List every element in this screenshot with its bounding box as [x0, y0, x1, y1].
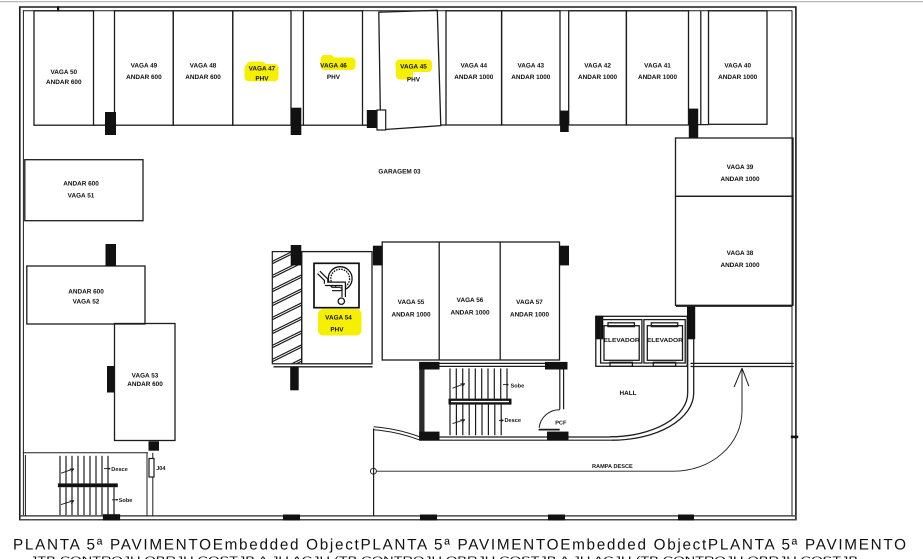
svg-text:PLANTA 5ª PAVIMENTOEmbedded: PLANTA 5ª PAVIMENTOEmbedded ObjectPLANTA…	[13, 537, 906, 554]
svg-text:ANDAR 1000: ANDAR 1000	[511, 74, 551, 81]
svg-text:VAGA 38: VAGA 38	[727, 250, 754, 257]
svg-text:ANDAR 1000: ANDAR 1000	[391, 311, 431, 318]
svg-text:ANDAR 1000: ANDAR 1000	[638, 74, 678, 81]
svg-text:PHV: PHV	[330, 326, 344, 333]
svg-text:HALL: HALL	[619, 390, 636, 397]
svg-text:VAGA 50: VAGA 50	[50, 69, 77, 76]
svg-text:PHV: PHV	[407, 77, 421, 84]
svg-text:PHV: PHV	[327, 74, 341, 81]
svg-text:JTB CONTROJU OBRJU COSTJB A JU: JTB CONTROJU OBRJU COSTJB A JU ACJU (TB …	[30, 554, 858, 559]
svg-text:VAGA 54: VAGA 54	[325, 314, 352, 321]
svg-text:ANDAR 1000: ANDAR 1000	[718, 74, 758, 81]
svg-text:ANDAR 1000: ANDAR 1000	[720, 262, 760, 269]
svg-text:ANDAR 600: ANDAR 600	[46, 79, 82, 86]
svg-text:ANDAR 1000: ANDAR 1000	[450, 309, 490, 316]
svg-text:VAGA 49: VAGA 49	[131, 63, 158, 70]
svg-text:VAGA 40: VAGA 40	[724, 63, 751, 70]
svg-text:VAGA 47: VAGA 47	[249, 65, 276, 72]
svg-text:VAGA 55: VAGA 55	[398, 299, 425, 306]
svg-text:VAGA 39: VAGA 39	[727, 164, 754, 171]
svg-text:VAGA 45: VAGA 45	[400, 64, 427, 71]
svg-text:Desce: Desce	[111, 467, 127, 473]
svg-text:GARAGEM 03: GARAGEM 03	[378, 169, 421, 176]
svg-text:VAGA 53: VAGA 53	[132, 373, 159, 380]
svg-text:ANDAR 1000: ANDAR 1000	[578, 74, 618, 81]
svg-text:VAGA 44: VAGA 44	[460, 63, 487, 70]
svg-text:VAGA 42: VAGA 42	[584, 63, 611, 70]
svg-text:RAMPA DESCE: RAMPA DESCE	[592, 464, 633, 470]
svg-text:PCF: PCF	[555, 421, 567, 427]
svg-text:Desce: Desce	[505, 418, 521, 424]
svg-text:ANDAR 600: ANDAR 600	[185, 74, 221, 81]
svg-text:VAGA 52: VAGA 52	[73, 298, 100, 305]
svg-text:VAGA 48: VAGA 48	[190, 63, 217, 70]
svg-text:ANDAR 600: ANDAR 600	[127, 381, 163, 388]
svg-text:VAGA 56: VAGA 56	[457, 297, 484, 304]
svg-text:ELEVADOR: ELEVADOR	[604, 337, 641, 344]
svg-text:ANDAR 600: ANDAR 600	[126, 74, 162, 81]
svg-text:ANDAR 600: ANDAR 600	[68, 288, 104, 295]
svg-text:ANDAR 600: ANDAR 600	[63, 181, 99, 188]
svg-text:VAGA 43: VAGA 43	[517, 63, 544, 70]
svg-text:VAGA 51: VAGA 51	[68, 193, 95, 200]
svg-text:PHV: PHV	[255, 75, 269, 82]
svg-text:ANDAR 1000: ANDAR 1000	[720, 176, 760, 183]
svg-text:Sobe: Sobe	[119, 497, 133, 504]
svg-text:VAGA 46: VAGA 46	[320, 63, 347, 70]
svg-text:VAGA 41: VAGA 41	[644, 63, 671, 70]
svg-text:J04: J04	[156, 466, 166, 472]
svg-text:ELEVADOR: ELEVADOR	[647, 337, 684, 344]
svg-text:Sobe: Sobe	[511, 383, 525, 390]
svg-text:ANDAR 1000: ANDAR 1000	[454, 74, 494, 81]
svg-text:VAGA 57: VAGA 57	[516, 299, 543, 306]
svg-text:ANDAR 1000: ANDAR 1000	[510, 311, 550, 318]
